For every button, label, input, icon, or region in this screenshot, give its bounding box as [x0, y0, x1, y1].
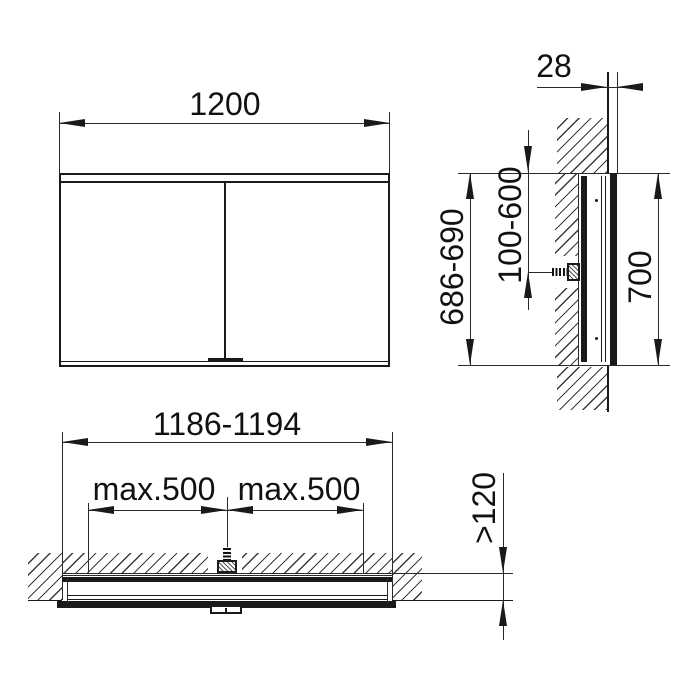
arrowhead-down [466, 339, 474, 365]
extension-line [62, 432, 63, 573]
arrowhead-right [581, 83, 607, 91]
fixing-spacing-right-label: max.500 [238, 473, 361, 505]
mirror-door-section [610, 173, 617, 365]
recess-back-line [62, 573, 513, 574]
hinge-dot [595, 337, 598, 340]
fixing-spacing-left-label: max.500 [93, 473, 216, 505]
cabinet-back-panel-section [581, 176, 587, 362]
cabinet-back-line [62, 575, 392, 576]
wall-face-line [392, 600, 513, 602]
arrowhead-left [62, 438, 88, 446]
arrowhead-up [499, 600, 507, 626]
cabinet-back-panel-section [62, 577, 392, 582]
technical-drawing-canvas: 1200 28 686-690 [0, 0, 700, 700]
fixing-range-label: 100-600 [494, 166, 526, 283]
wall-face-line [607, 365, 609, 412]
front-width-label: 1200 [189, 88, 260, 120]
wall-hatch-right [392, 553, 422, 600]
handle-strip [208, 358, 243, 363]
arrowhead-up [654, 173, 662, 199]
cabinet-height-label: 700 [624, 250, 656, 303]
arrowhead-left [59, 119, 85, 127]
hinge-dot [595, 199, 598, 202]
recess-bottom-line [458, 365, 670, 366]
protrusion-label: 28 [536, 50, 572, 82]
handle-tab-split [225, 608, 227, 613]
wall-anchor-screw [552, 268, 568, 276]
cabinet-front-frame-section [67, 595, 387, 600]
arrowhead-up [466, 173, 474, 199]
wall-anchor-screw [223, 547, 231, 561]
wall-hatch-upper [557, 118, 607, 173]
leader-line [528, 272, 555, 273]
wall-anchor-block [217, 560, 237, 573]
arrowhead-down [654, 339, 662, 365]
wall-hatch-left [28, 553, 62, 600]
wall-hatch-lower [557, 367, 607, 410]
door-split-line [224, 182, 226, 361]
recess-height-label: 686-690 [436, 208, 468, 325]
recess-top-line [458, 173, 670, 174]
cabinet-front-frame-section [601, 176, 607, 362]
arrowhead-down [499, 547, 507, 573]
recess-depth-label: >120 [468, 472, 500, 544]
arrowhead-right [364, 119, 390, 127]
recess-width-label: 1186-1194 [153, 408, 301, 440]
arrowhead-right [366, 438, 392, 446]
wall-anchor-block [567, 263, 580, 281]
arrowhead-left [617, 83, 643, 91]
dimension-line [59, 123, 390, 124]
extension-line [392, 432, 393, 573]
